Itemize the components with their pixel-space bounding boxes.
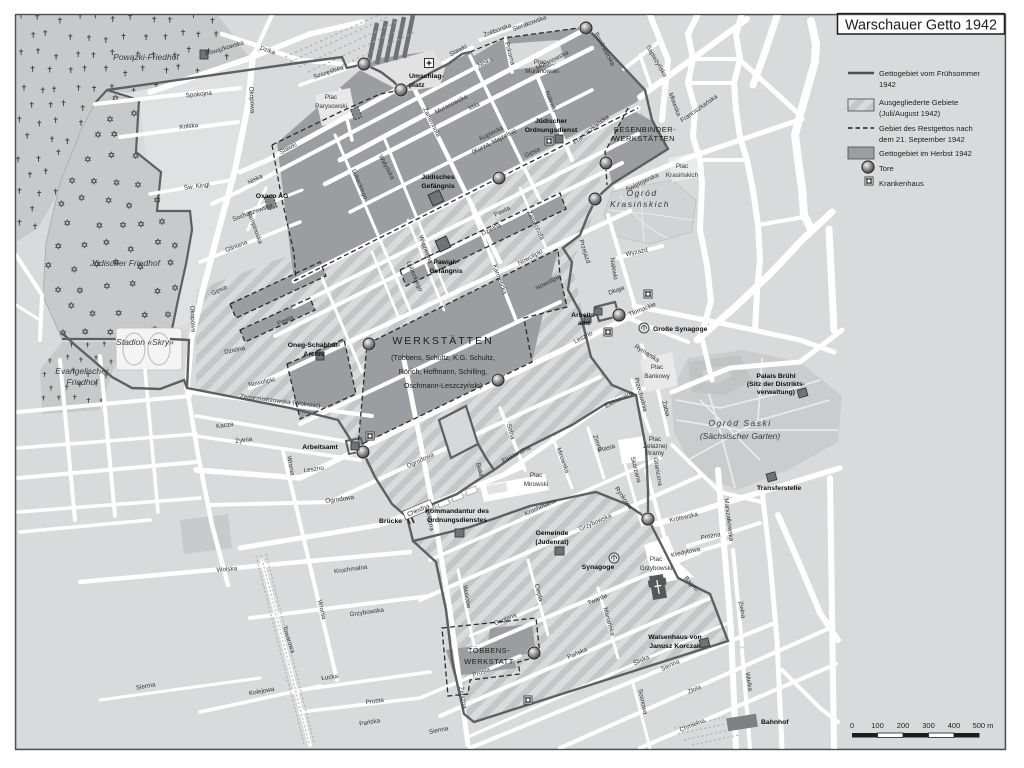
svg-text:Tore: Tore: [879, 164, 894, 173]
svg-text:WERKSTATT: WERKSTATT: [464, 657, 514, 666]
svg-text:Pawiak-: Pawiak-: [433, 259, 458, 266]
svg-text:Plac: Plac: [325, 94, 337, 101]
svg-text:(Juli/August 1942): (Juli/August 1942): [879, 109, 941, 118]
svg-text:Bahnhof: Bahnhof: [761, 719, 789, 726]
svg-text:Große Synagoge: Große Synagoge: [653, 326, 708, 333]
svg-text:Waisenhaus von: Waisenhaus von: [648, 634, 701, 641]
svg-text:Gebiet des Restgettos nach: Gebiet des Restgettos nach: [879, 124, 973, 133]
svg-text:amt: amt: [578, 320, 591, 327]
svg-text:BESENBINDER-: BESENBINDER-: [614, 125, 676, 134]
svg-text:Grzybowski: Grzybowski: [640, 565, 673, 572]
svg-text:(Sächsischer Garten): (Sächsischer Garten): [700, 431, 780, 441]
svg-text:Jüdischer: Jüdischer: [535, 118, 567, 125]
svg-text:Oschmann-Leszczyński): Oschmann-Leszczyński): [404, 381, 482, 390]
svg-text:Mirowski: Mirowski: [524, 481, 549, 488]
svg-text:Ogród: Ogród: [626, 188, 657, 198]
svg-text:Gemeinde: Gemeinde: [536, 530, 569, 537]
svg-text:Gettogebiet im Herbst 1942: Gettogebiet im Herbst 1942: [879, 149, 972, 158]
svg-text:Jüdischer Friedhof: Jüdischer Friedhof: [89, 258, 162, 268]
svg-text:Bramy: Bramy: [646, 450, 665, 457]
svg-text:WERKSTÄTTEN: WERKSTÄTTEN: [613, 134, 675, 143]
svg-text:0: 0: [850, 721, 854, 730]
svg-text:Umschlag-: Umschlag-: [409, 73, 444, 80]
svg-text:Gettogebiet vom Frühsommer: Gettogebiet vom Frühsommer: [879, 69, 980, 78]
svg-text:(Judenrat): (Judenrat): [535, 539, 568, 546]
svg-text:Plac: Plac: [530, 472, 542, 479]
svg-text:Brücke: Brücke: [379, 518, 402, 525]
svg-text:Arbeits-: Arbeits-: [571, 312, 597, 319]
svg-text:Plac: Plac: [651, 364, 663, 371]
svg-text:Ordnungsdienstes: Ordnungsdienstes: [427, 517, 487, 524]
svg-text:Gefängnis: Gefängnis: [429, 268, 462, 275]
svg-text:Kommandantur des: Kommandantur des: [425, 508, 489, 515]
svg-text:Plac: Plac: [534, 59, 546, 66]
svg-text:(Sitz der Distrikts-: (Sitz der Distrikts-: [747, 381, 805, 388]
svg-text:Ausgegliederte Gebiete: Ausgegliederte Gebiete: [879, 98, 958, 107]
svg-text:Janusz Korczak: Janusz Korczak: [649, 643, 701, 650]
svg-text:Jüdisches: Jüdisches: [421, 174, 454, 181]
svg-text:Krankenhaus: Krankenhaus: [879, 179, 924, 188]
svg-text:verwaltung): verwaltung): [757, 389, 795, 396]
svg-text:Parysowski: Parysowski: [315, 103, 347, 110]
svg-text:Oneg-Schabbat-: Oneg-Schabbat-: [288, 342, 341, 349]
svg-text:1942: 1942: [879, 80, 896, 89]
svg-text:Bankowy: Bankowy: [644, 373, 670, 380]
svg-text:Powązki-Friedhof: Powązki-Friedhof: [113, 52, 180, 62]
svg-text:Oxaco AG: Oxaco AG: [256, 193, 289, 200]
svg-text:WERKSTÄTTEN: WERKSTÄTTEN: [392, 335, 493, 347]
svg-text:Synagoge: Synagoge: [582, 564, 615, 571]
svg-text:Gefängnis: Gefängnis: [421, 183, 454, 190]
svg-text:Muranowski: Muranowski: [525, 68, 559, 75]
svg-text:Ordnungsdienst: Ordnungsdienst: [525, 127, 578, 134]
svg-text:TÖBBENS-: TÖBBENS-: [468, 646, 510, 655]
svg-text:Archiv: Archiv: [303, 351, 324, 358]
svg-text:(Többens, Schultz, K.G. Schult: (Többens, Schultz, K.G. Schultz,: [391, 353, 495, 362]
svg-text:Ogród Saski: Ogród Saski: [708, 418, 771, 428]
svg-text:Krasińskich: Krasińskich: [666, 172, 699, 179]
svg-text:Żelaznej: Żelaznej: [643, 441, 667, 450]
svg-text:Warschauer Getto 1942: Warschauer Getto 1942: [845, 17, 997, 34]
svg-text:Transferstelle: Transferstelle: [757, 485, 801, 492]
svg-text:Plac: Plac: [676, 163, 688, 170]
svg-text:Okopowa: Okopowa: [247, 86, 255, 113]
svg-text:platz: platz: [409, 82, 425, 89]
svg-text:200: 200: [897, 721, 910, 730]
svg-text:Palais Brühl: Palais Brühl: [756, 373, 795, 380]
svg-text:Rörich, Hoffmann, Schilling,: Rörich, Hoffmann, Schilling,: [399, 367, 488, 376]
svg-text:300: 300: [922, 721, 935, 730]
svg-text:Friedhof: Friedhof: [66, 377, 99, 387]
svg-text:500 m: 500 m: [973, 721, 994, 730]
svg-text:Stadion «Skry»: Stadion «Skry»: [116, 337, 174, 347]
svg-text:Krasińskich: Krasińskich: [610, 199, 670, 209]
svg-text:Plac: Plac: [649, 436, 661, 443]
svg-text:dem 21. September 1942: dem 21. September 1942: [879, 135, 965, 144]
svg-text:100: 100: [871, 721, 884, 730]
svg-text:400: 400: [948, 721, 961, 730]
svg-text:Evangelischer: Evangelischer: [55, 366, 110, 376]
svg-text:Okopowa: Okopowa: [188, 305, 196, 332]
svg-text:Arbeitsamt: Arbeitsamt: [302, 444, 338, 451]
svg-text:Plac: Plac: [650, 556, 662, 563]
